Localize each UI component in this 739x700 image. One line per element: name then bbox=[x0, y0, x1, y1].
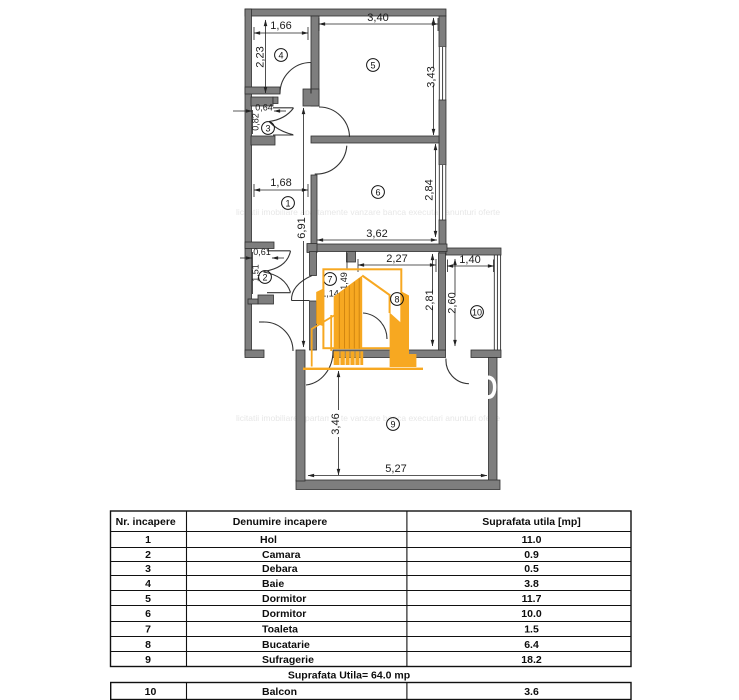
svg-text:8: 8 bbox=[145, 639, 151, 651]
svg-text:18.2: 18.2 bbox=[521, 654, 542, 666]
svg-text:Bucatarie: Bucatarie bbox=[262, 639, 310, 651]
svg-text:0,82: 0,82 bbox=[251, 113, 261, 131]
svg-text:2: 2 bbox=[262, 272, 267, 282]
svg-text:2,27: 2,27 bbox=[386, 253, 407, 265]
svg-text:3,40: 3,40 bbox=[367, 12, 388, 24]
svg-text:Toaleta: Toaleta bbox=[262, 624, 298, 636]
svg-text:licitatii imobiliare apartamen: licitatii imobiliare apartamente vanzare… bbox=[236, 413, 500, 423]
svg-text:4: 4 bbox=[278, 50, 283, 60]
svg-text:10.0: 10.0 bbox=[521, 608, 542, 620]
svg-text:6: 6 bbox=[145, 608, 151, 620]
svg-text:10: 10 bbox=[472, 307, 482, 317]
svg-text:3,62: 3,62 bbox=[366, 228, 387, 240]
svg-text:2,60: 2,60 bbox=[447, 292, 459, 313]
svg-text:1,66: 1,66 bbox=[270, 20, 291, 32]
svg-text:9: 9 bbox=[390, 419, 395, 429]
svg-text:11.0: 11.0 bbox=[522, 534, 542, 546]
svg-text:4: 4 bbox=[145, 578, 151, 590]
svg-text:Camara: Camara bbox=[262, 549, 301, 561]
svg-text:3,46: 3,46 bbox=[330, 413, 342, 434]
svg-text:2,84: 2,84 bbox=[424, 179, 436, 200]
svg-text:0,61: 0,61 bbox=[253, 247, 271, 257]
svg-text:3: 3 bbox=[265, 123, 270, 133]
svg-text:10: 10 bbox=[145, 686, 157, 698]
svg-text:3: 3 bbox=[145, 563, 151, 575]
svg-text:1: 1 bbox=[285, 198, 290, 208]
svg-text:11.7: 11.7 bbox=[522, 593, 542, 605]
svg-text:6.4: 6.4 bbox=[524, 639, 539, 651]
svg-text:9: 9 bbox=[145, 654, 151, 666]
svg-text:3.8: 3.8 bbox=[524, 578, 539, 590]
svg-text:0,64: 0,64 bbox=[255, 103, 273, 113]
svg-text:1.5: 1.5 bbox=[524, 624, 539, 636]
svg-text:7: 7 bbox=[145, 624, 151, 636]
svg-text:5: 5 bbox=[370, 60, 375, 70]
svg-text:1,40: 1,40 bbox=[459, 254, 480, 266]
svg-text:6: 6 bbox=[375, 187, 380, 197]
svg-text:8: 8 bbox=[394, 294, 399, 304]
svg-text:1: 1 bbox=[145, 534, 151, 546]
svg-text:Dormitor: Dormitor bbox=[262, 608, 306, 620]
svg-text:3.6: 3.6 bbox=[524, 686, 539, 698]
svg-text:Debara: Debara bbox=[262, 563, 298, 575]
svg-text:Suprafata Utila= 64.0 mp: Suprafata Utila= 64.0 mp bbox=[288, 670, 410, 682]
svg-text:2: 2 bbox=[145, 549, 151, 561]
svg-text:2,23: 2,23 bbox=[255, 46, 267, 67]
svg-text:Sufragerie: Sufragerie bbox=[262, 654, 314, 666]
svg-text:7: 7 bbox=[327, 274, 332, 284]
svg-text:Dormitor: Dormitor bbox=[262, 593, 306, 605]
svg-text:2,81: 2,81 bbox=[424, 289, 436, 310]
svg-text:Hol: Hol bbox=[260, 534, 277, 546]
svg-text:Baie: Baie bbox=[262, 578, 284, 590]
svg-text:6,91: 6,91 bbox=[296, 217, 308, 238]
svg-text:Balcon: Balcon bbox=[262, 686, 297, 698]
svg-text:Suprafata utila [mp]: Suprafata utila [mp] bbox=[482, 516, 581, 528]
svg-text:Nr. incapere: Nr. incapere bbox=[116, 516, 176, 528]
svg-text:D: D bbox=[480, 369, 498, 407]
svg-text:1,68: 1,68 bbox=[270, 177, 291, 189]
svg-text:5,27: 5,27 bbox=[385, 463, 406, 475]
svg-text:5: 5 bbox=[145, 593, 151, 605]
svg-text:0.5: 0.5 bbox=[524, 563, 539, 575]
svg-text:licitatii imobiliare apartamen: licitatii imobiliare apartamente vanzare… bbox=[236, 207, 500, 217]
svg-text:Denumire incapere: Denumire incapere bbox=[233, 516, 328, 528]
svg-text:3,43: 3,43 bbox=[426, 66, 438, 87]
svg-text:0.9: 0.9 bbox=[524, 549, 539, 561]
